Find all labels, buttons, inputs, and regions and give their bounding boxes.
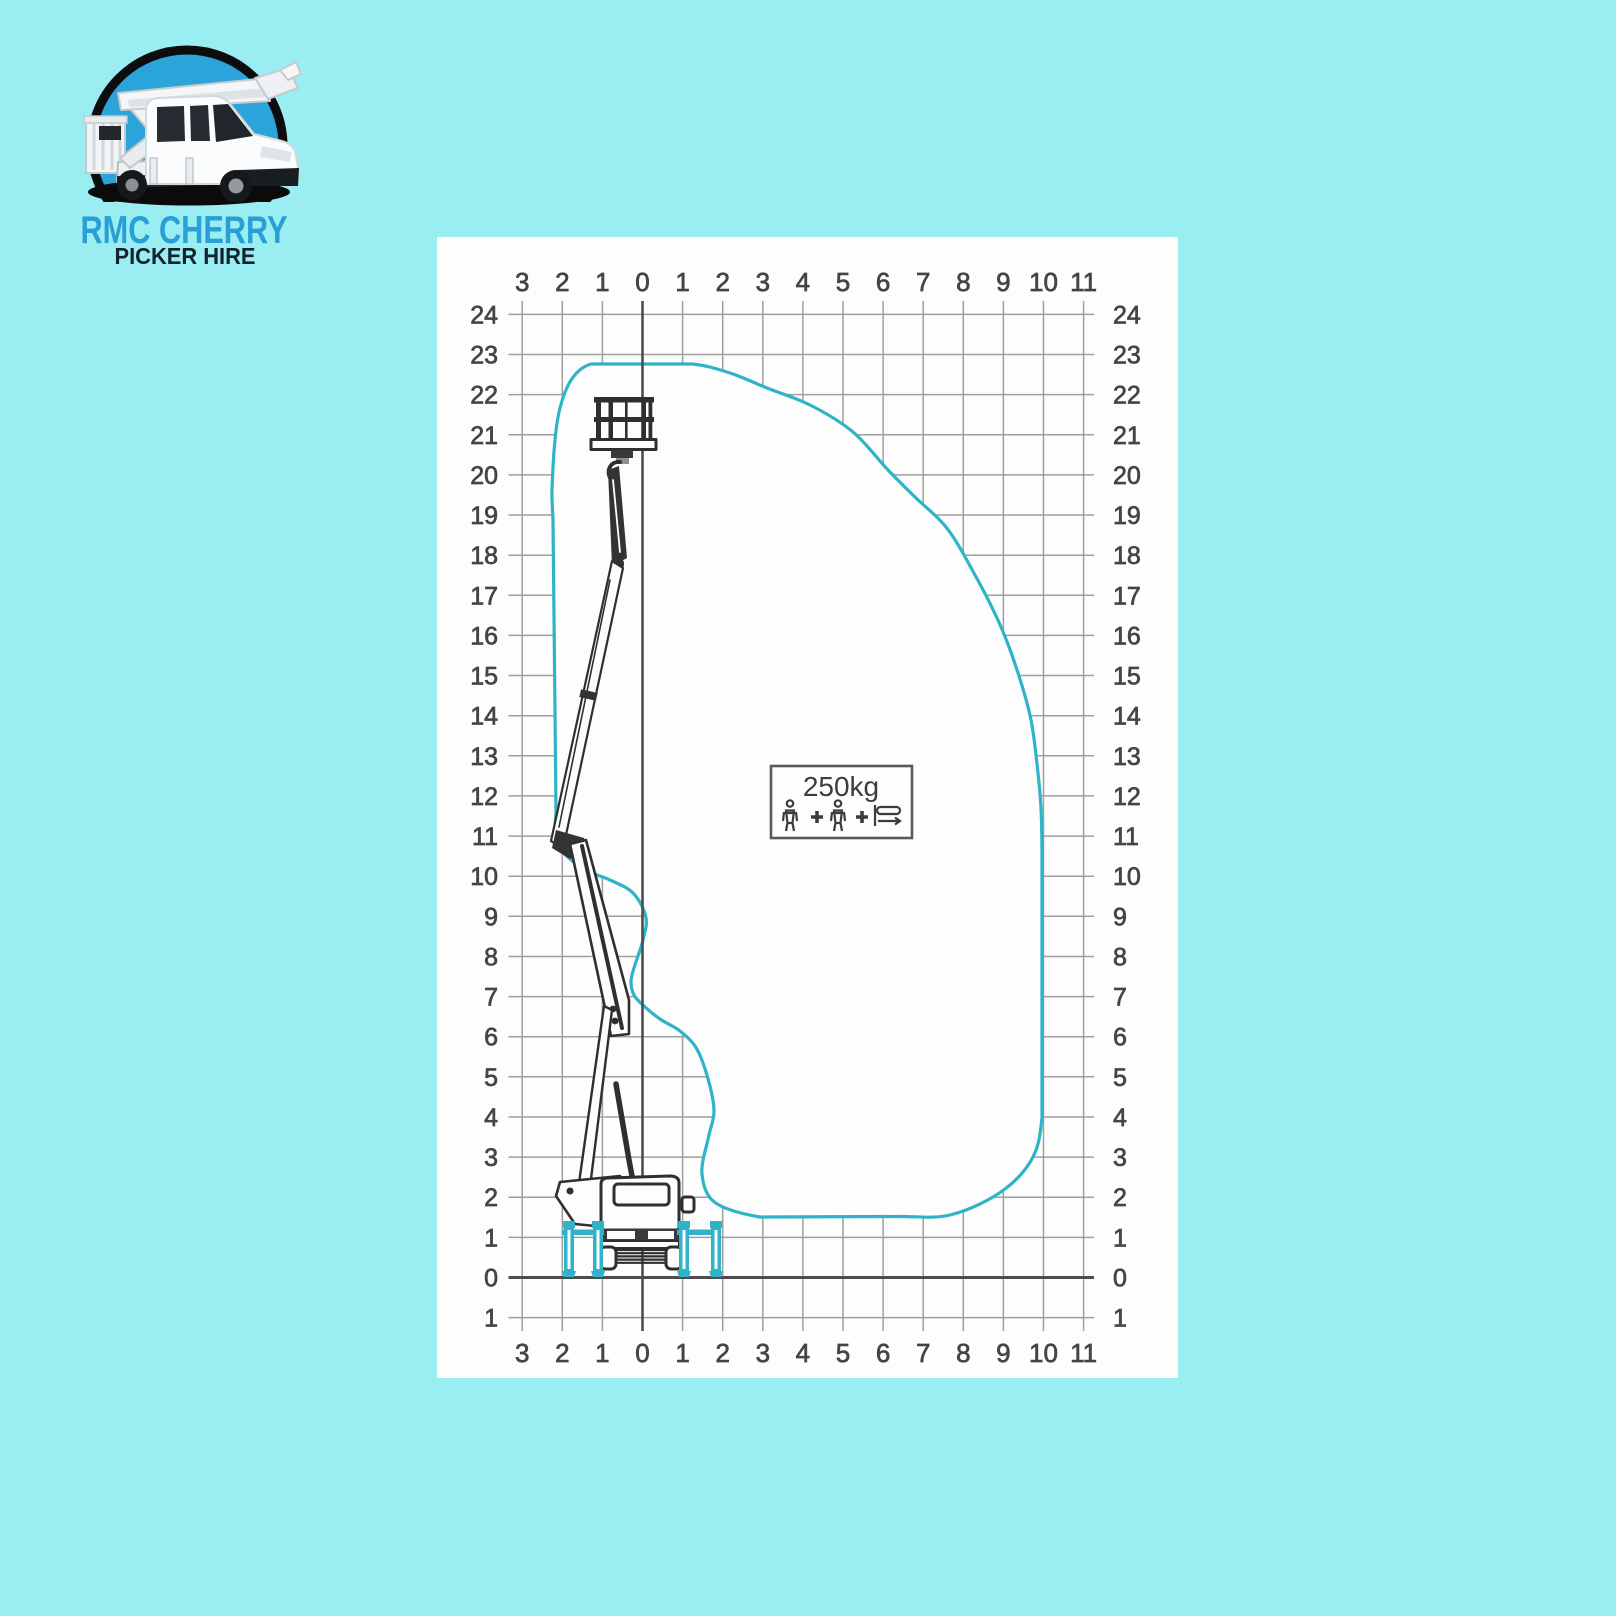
svg-text:11: 11	[472, 823, 498, 851]
svg-text:2: 2	[555, 1338, 569, 1368]
svg-text:11: 11	[1070, 267, 1097, 297]
svg-text:11: 11	[1070, 1338, 1097, 1368]
svg-text:1: 1	[484, 1224, 498, 1252]
svg-text:PICKER HIRE: PICKER HIRE	[115, 243, 256, 269]
svg-text:6: 6	[876, 1338, 890, 1368]
svg-text:15: 15	[470, 663, 498, 691]
svg-text:7: 7	[916, 1338, 930, 1368]
svg-text:22: 22	[470, 382, 498, 410]
svg-text:24: 24	[1113, 301, 1141, 329]
svg-text:20: 20	[1113, 462, 1141, 490]
svg-text:6: 6	[1113, 1024, 1127, 1052]
svg-text:5: 5	[484, 1064, 498, 1092]
svg-text:10: 10	[1029, 1338, 1058, 1368]
svg-text:13: 13	[470, 743, 498, 771]
svg-text:2: 2	[715, 1338, 729, 1368]
svg-text:0: 0	[635, 267, 649, 297]
svg-text:3: 3	[756, 267, 770, 297]
svg-text:1: 1	[1113, 1224, 1127, 1252]
svg-text:21: 21	[470, 422, 498, 450]
svg-text:8: 8	[484, 944, 498, 972]
svg-text:17: 17	[1113, 582, 1141, 610]
svg-text:1: 1	[595, 267, 609, 297]
svg-text:21: 21	[1113, 422, 1141, 450]
svg-text:8: 8	[956, 267, 970, 297]
svg-text:18: 18	[1113, 542, 1141, 570]
svg-text:23: 23	[1113, 342, 1141, 370]
svg-text:250kg: 250kg	[803, 771, 879, 802]
svg-text:8: 8	[956, 1338, 970, 1368]
svg-text:10: 10	[470, 863, 498, 891]
svg-text:7: 7	[484, 984, 498, 1012]
svg-text:9: 9	[996, 1338, 1010, 1368]
svg-text:3: 3	[1113, 1144, 1127, 1172]
svg-text:18: 18	[470, 542, 498, 570]
svg-text:13: 13	[1113, 743, 1141, 771]
svg-text:8: 8	[1113, 944, 1127, 972]
svg-text:9: 9	[484, 903, 498, 931]
svg-text:1: 1	[1113, 1305, 1127, 1333]
svg-text:4: 4	[796, 1338, 810, 1368]
svg-text:1: 1	[675, 1338, 689, 1368]
svg-text:22: 22	[1113, 382, 1141, 410]
svg-text:10: 10	[1029, 267, 1058, 297]
svg-text:6: 6	[876, 267, 890, 297]
svg-text:23: 23	[470, 342, 498, 370]
svg-text:3: 3	[515, 1338, 529, 1368]
svg-text:16: 16	[470, 622, 498, 650]
svg-text:7: 7	[1113, 984, 1127, 1012]
svg-text:2: 2	[1113, 1184, 1127, 1212]
svg-text:3: 3	[756, 1338, 770, 1368]
svg-text:15: 15	[1113, 663, 1141, 691]
svg-text:1: 1	[595, 1338, 609, 1368]
svg-text:16: 16	[1113, 622, 1141, 650]
svg-text:11: 11	[1113, 823, 1139, 851]
svg-text:19: 19	[470, 502, 498, 530]
svg-text:4: 4	[796, 267, 810, 297]
svg-text:20: 20	[470, 462, 498, 490]
svg-text:1: 1	[484, 1305, 498, 1333]
svg-text:10: 10	[1113, 863, 1141, 891]
svg-text:9: 9	[996, 267, 1010, 297]
svg-text:12: 12	[470, 783, 498, 811]
svg-text:9: 9	[1113, 903, 1127, 931]
svg-text:14: 14	[1113, 703, 1141, 731]
svg-text:17: 17	[470, 582, 498, 610]
svg-text:1: 1	[675, 267, 689, 297]
svg-text:0: 0	[484, 1265, 498, 1293]
svg-text:12: 12	[1113, 783, 1141, 811]
svg-text:6: 6	[484, 1024, 498, 1052]
svg-text:0: 0	[1113, 1265, 1127, 1293]
svg-text:0: 0	[635, 1338, 649, 1368]
svg-text:5: 5	[1113, 1064, 1127, 1092]
svg-text:4: 4	[1113, 1104, 1127, 1132]
svg-text:5: 5	[836, 1338, 850, 1368]
svg-text:3: 3	[484, 1144, 498, 1172]
svg-text:2: 2	[715, 267, 729, 297]
svg-text:24: 24	[470, 301, 498, 329]
svg-text:2: 2	[484, 1184, 498, 1212]
svg-text:2: 2	[555, 267, 569, 297]
svg-text:4: 4	[484, 1104, 498, 1132]
svg-text:19: 19	[1113, 502, 1141, 530]
svg-text:5: 5	[836, 267, 850, 297]
svg-text:7: 7	[916, 267, 930, 297]
svg-text:14: 14	[470, 703, 498, 731]
svg-text:3: 3	[515, 267, 529, 297]
